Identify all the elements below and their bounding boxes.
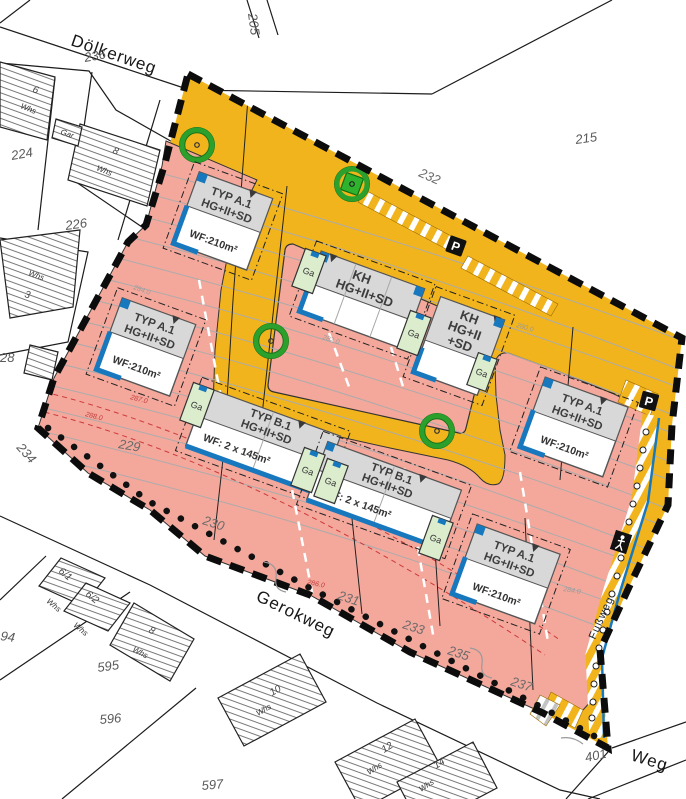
house-type: Whs bbox=[72, 621, 90, 638]
house-6 bbox=[0, 62, 55, 140]
parcel-label: 597 bbox=[201, 776, 225, 793]
parcel-label: 226 bbox=[63, 215, 88, 233]
parcel-label: 28 bbox=[0, 350, 15, 365]
parcel-label: 94 bbox=[0, 628, 16, 645]
parcel-label: 215 bbox=[573, 129, 598, 147]
parcel-label: 232 bbox=[416, 165, 444, 188]
street-label-weg: Weg bbox=[629, 746, 671, 775]
parcel-label: 236 bbox=[82, 46, 108, 65]
site-plan-svg: TYP A.1 HG+II+SD WF:210m² TYP A.1 HG+II+… bbox=[0, 0, 686, 799]
parcel-label: 205 bbox=[245, 11, 263, 36]
parcel-label: 401 bbox=[584, 746, 608, 765]
site-plan-page: TYP A.1 HG+II+SD WF:210m² TYP A.1 HG+II+… bbox=[0, 0, 686, 799]
parcel-label: 595 bbox=[96, 657, 120, 675]
parcel-label: 224 bbox=[9, 144, 34, 163]
parcel-label: 596 bbox=[99, 710, 123, 727]
garage-b bbox=[24, 345, 58, 380]
house-8a bbox=[68, 124, 160, 206]
parcel-label: 234 bbox=[13, 439, 39, 466]
house-type: Whs bbox=[45, 597, 63, 614]
house-8b bbox=[110, 603, 194, 681]
